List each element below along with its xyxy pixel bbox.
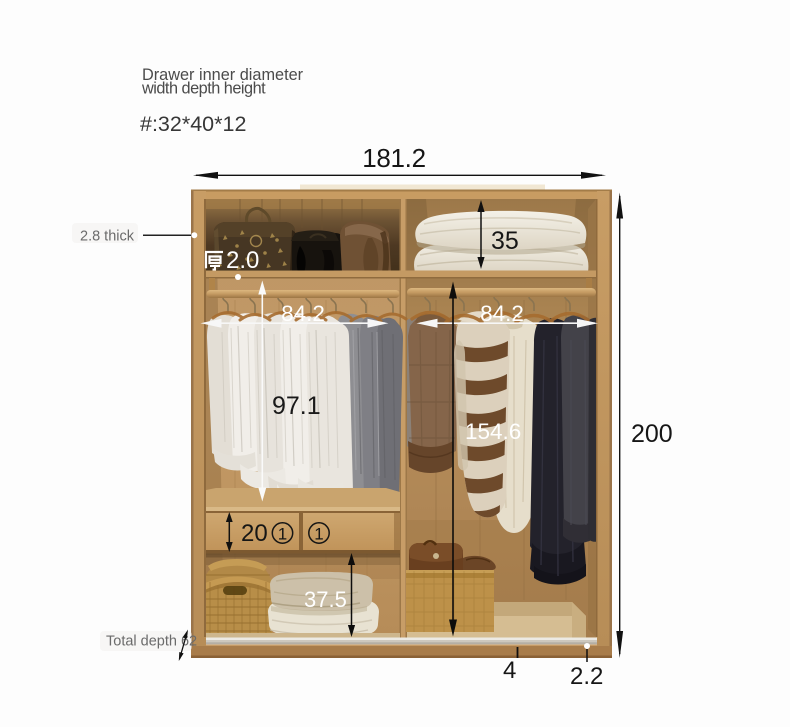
svg-text:181.2: 181.2	[362, 143, 426, 173]
svg-text:37.5: 37.5	[304, 587, 347, 612]
svg-text:97.1: 97.1	[272, 392, 321, 420]
svg-text:84.2: 84.2	[281, 301, 325, 326]
svg-text:200: 200	[631, 420, 673, 448]
svg-text:154.6: 154.6	[465, 419, 521, 444]
svg-text:2.8 thick: 2.8 thick	[80, 229, 135, 245]
svg-text:2.2: 2.2	[570, 663, 603, 690]
svg-text:width depth height: width depth height	[141, 80, 266, 98]
svg-text:2.0: 2.0	[226, 247, 259, 274]
svg-text:#:32*40*12: #:32*40*12	[140, 112, 246, 136]
svg-text:20: 20	[241, 520, 268, 547]
svg-text:84.2: 84.2	[480, 301, 524, 326]
svg-text:4: 4	[503, 657, 516, 684]
svg-text:1: 1	[314, 525, 323, 544]
svg-text:35: 35	[491, 227, 519, 255]
svg-text:1: 1	[278, 525, 287, 544]
